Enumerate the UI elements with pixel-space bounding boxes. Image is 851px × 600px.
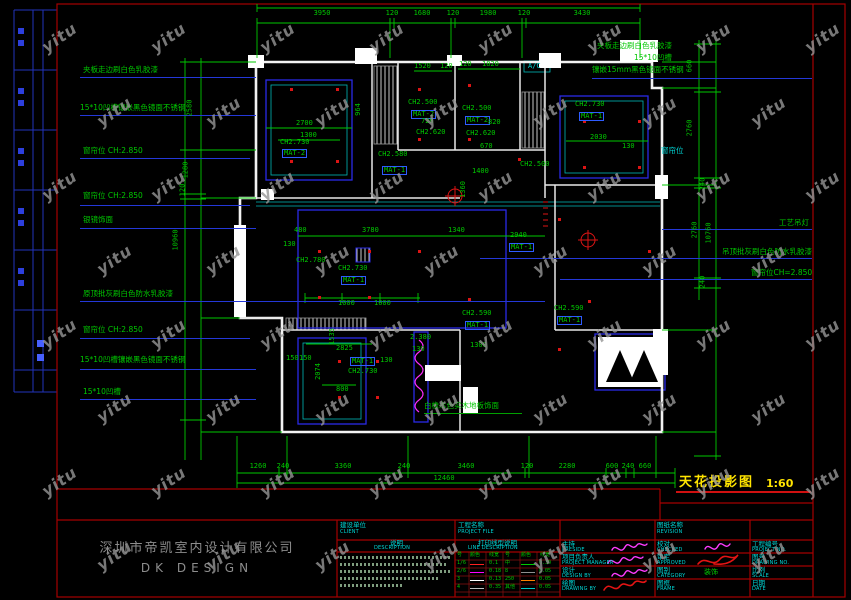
line-table-grid — [455, 552, 560, 597]
downlight-markers — [290, 84, 651, 399]
signoff-marks — [18, 28, 44, 361]
cad-viewport: 深圳市帝凯室内设计有限公司 DK DESIGN 天花投影图 1:60 建设单位 … — [0, 0, 851, 600]
dimension-lines — [180, 4, 721, 488]
signature-marks — [608, 544, 730, 576]
red-signature-marks — [604, 555, 738, 590]
curtain-symbol — [415, 340, 423, 412]
floor-plan-drawing — [0, 0, 851, 600]
signoff-strip — [14, 10, 57, 392]
drawing-frame — [57, 4, 845, 597]
